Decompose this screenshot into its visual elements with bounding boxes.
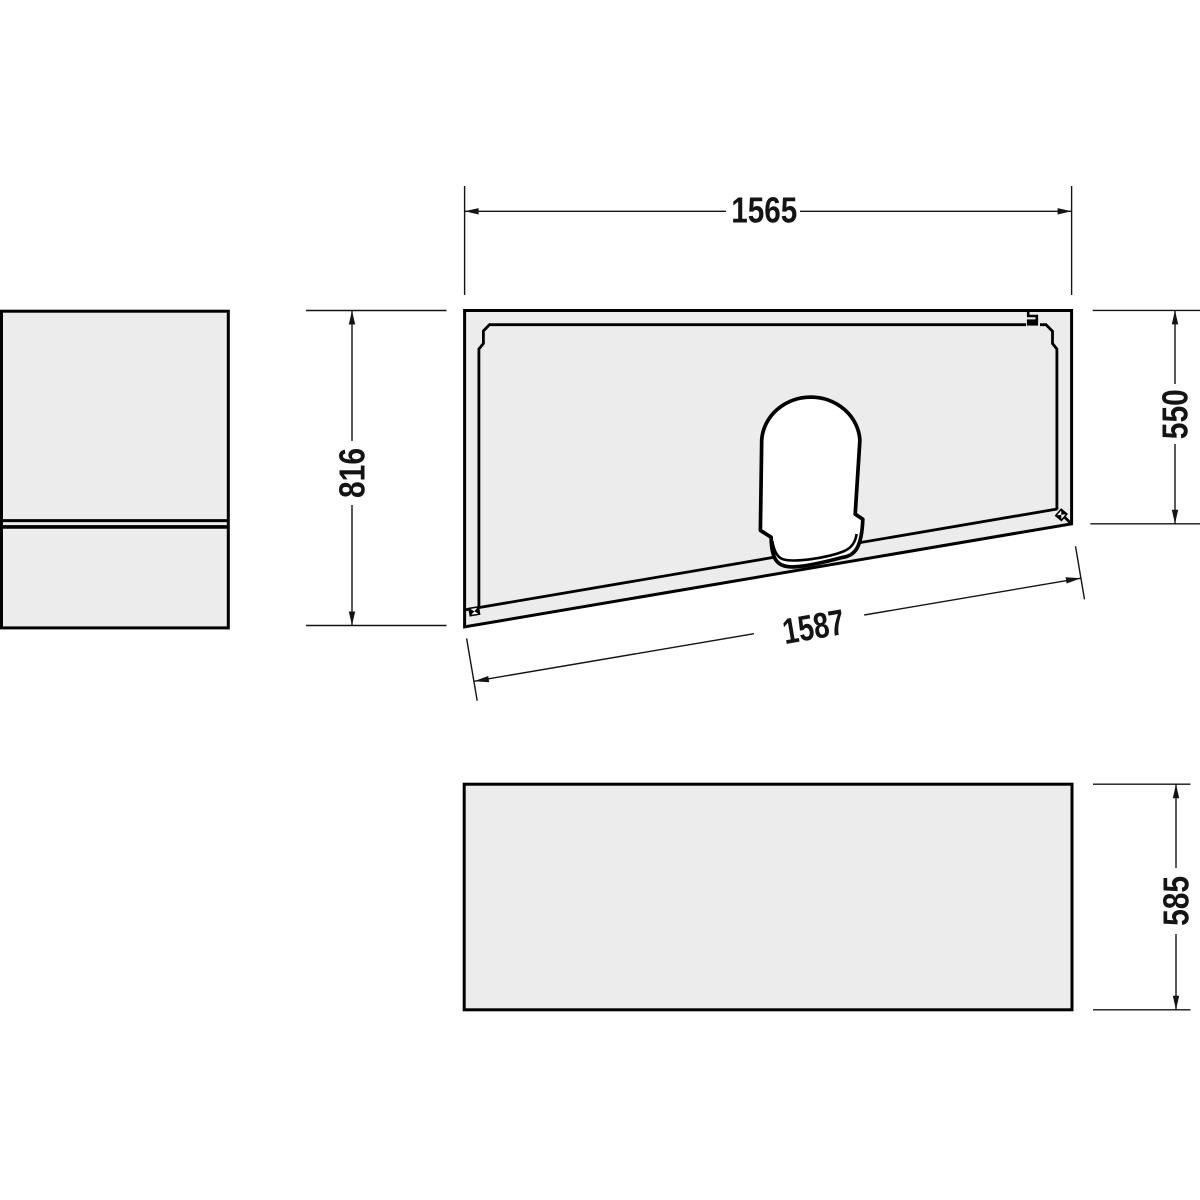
svg-text:550: 550 — [1154, 389, 1195, 439]
svg-text:816: 816 — [331, 448, 372, 498]
svg-text:1565: 1565 — [731, 189, 797, 230]
svg-text:585: 585 — [1155, 876, 1196, 926]
